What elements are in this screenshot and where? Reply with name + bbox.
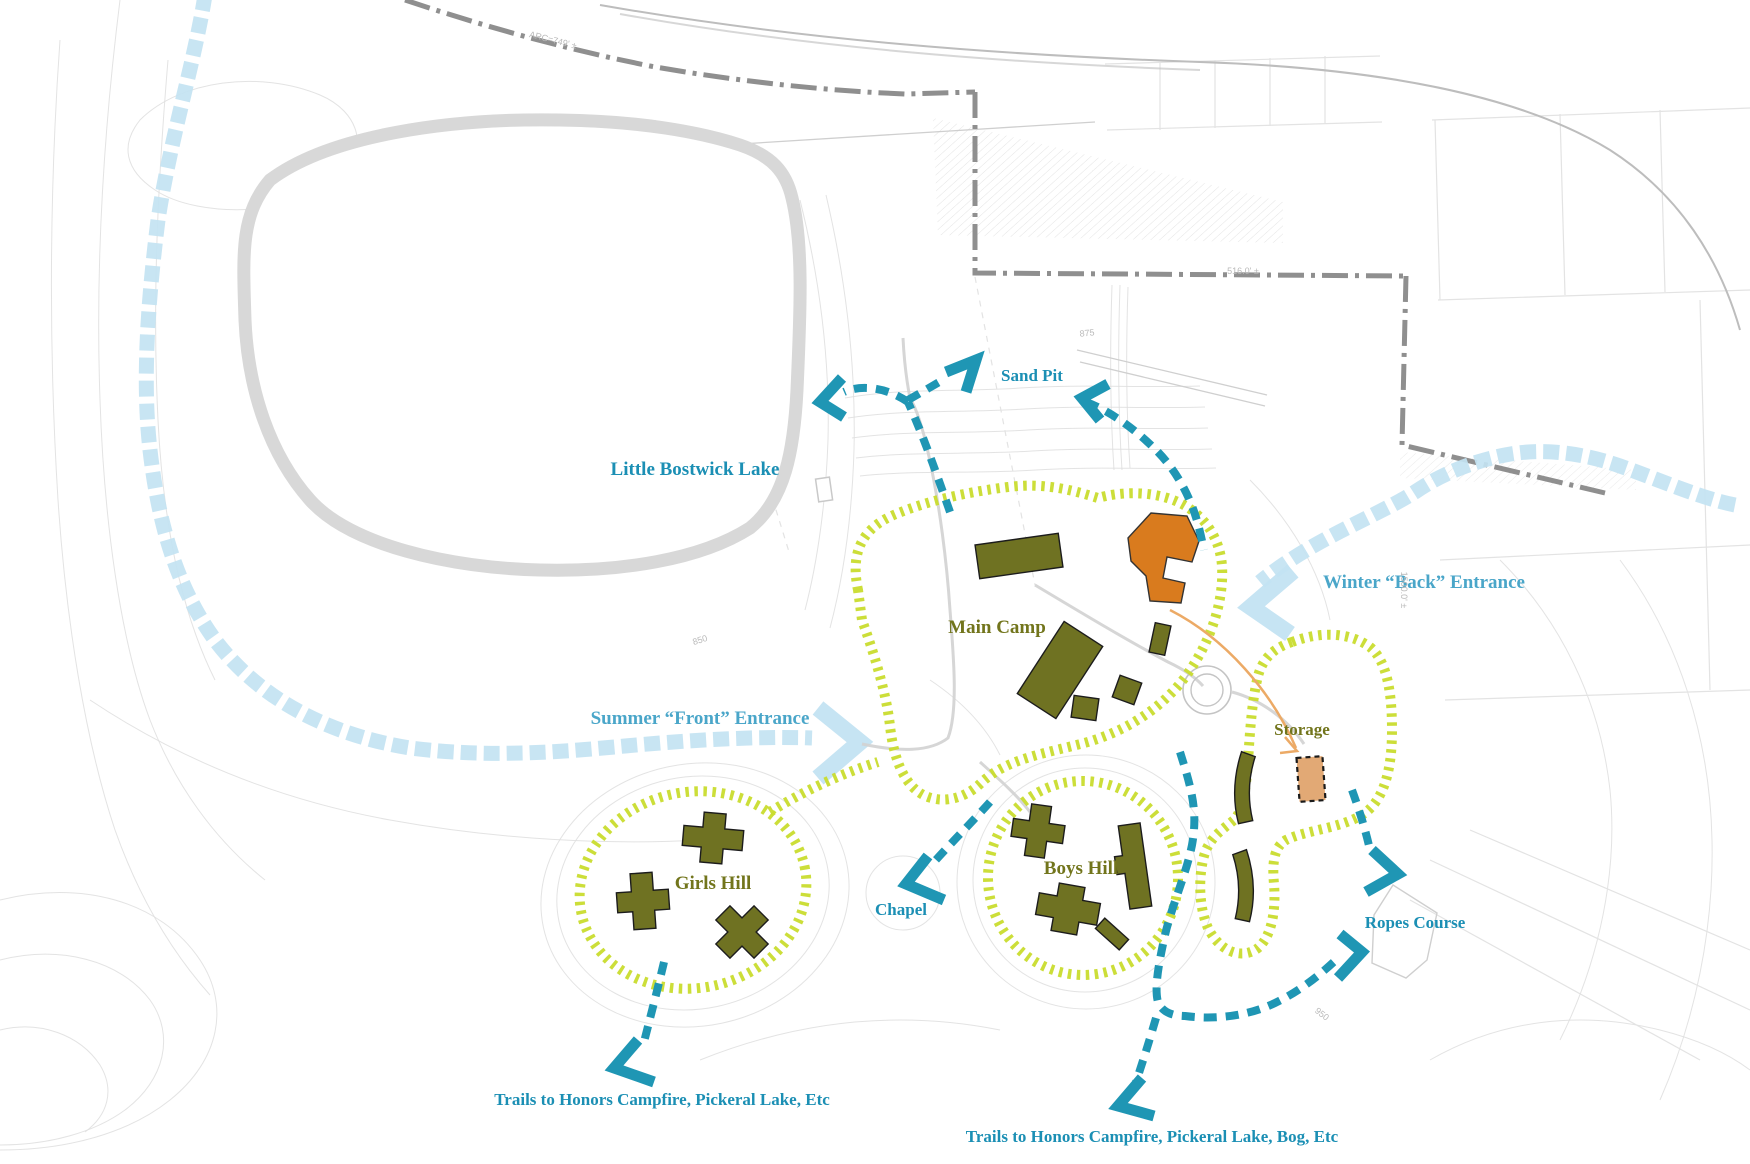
- boys-hill-cabin-3: [1033, 880, 1102, 938]
- label-winter-back-entrance: Winter “Back” Entrance: [1323, 572, 1525, 594]
- trail-arrow-ropes-icon: [1338, 934, 1362, 978]
- label-summer-front-entrance: Summer “Front” Entrance: [591, 708, 810, 730]
- slope-hatch-band: [933, 118, 1283, 243]
- main-camp-dining-hall: [1128, 513, 1199, 603]
- girls-hill-cabin-1: [681, 810, 745, 865]
- storage-shed: [1296, 756, 1325, 802]
- main-camp-cabin-3: [1149, 623, 1171, 656]
- label-boys-hill: Boys Hill: [1044, 858, 1118, 880]
- storage-building-1: [1232, 751, 1257, 824]
- label-main-camp: Main Camp: [948, 617, 1046, 639]
- trail-arrow-sand-pit-icon: [946, 360, 976, 392]
- boys-hill-cabin-4: [1095, 918, 1128, 950]
- main-camp-cabin-2: [1071, 695, 1099, 720]
- girls-hill-cabin-3: [704, 894, 780, 970]
- little-bostwick-lake-shape: [244, 120, 800, 570]
- camp-roads: [862, 338, 1304, 812]
- trail-arrow-chapel-icon: [906, 856, 944, 900]
- girls-hill-cabin-2: [615, 871, 671, 930]
- annotation-516: 516.0' ±: [1227, 266, 1259, 276]
- label-storage: Storage: [1274, 720, 1330, 740]
- trail-girls-hill-south: [643, 962, 664, 1046]
- annotation-elev-875: 875: [1079, 327, 1095, 339]
- trail-sand-pit-east-branch: [908, 378, 946, 400]
- boys-hill-cabin-1: [1009, 802, 1068, 861]
- winter-entrance-arrow-icon: [1251, 571, 1293, 634]
- site-plan-map: Little Bostwick Lake Sand Pit Summer “Fr…: [0, 0, 1750, 1164]
- trail-to-chapel: [934, 802, 990, 862]
- annotation-1500: 1500.0' ±: [1399, 572, 1409, 609]
- label-trails-southwest: Trails to Honors Campfire, Pickeral Lake…: [494, 1090, 830, 1110]
- lake-dock: [816, 477, 833, 502]
- trail-arrow-south-icon: [1118, 1078, 1154, 1116]
- trail-arrow-west-icon: [820, 378, 844, 417]
- main-camp-cabin-1: [1112, 675, 1141, 704]
- label-ropes-course: Ropes Course: [1365, 913, 1466, 933]
- label-trails-south: Trails to Honors Campfire, Pickeral Lake…: [966, 1127, 1338, 1147]
- activity-area-rings: [561, 486, 1392, 1010]
- main-camp-lodge: [975, 533, 1063, 578]
- roundabout-inner: [1191, 674, 1223, 706]
- label-chapel: Chapel: [875, 900, 927, 920]
- label-girls-hill: Girls Hill: [675, 873, 752, 895]
- trail-arrow-southwest-icon: [614, 1040, 654, 1082]
- trail-south-branch: [1136, 1018, 1156, 1082]
- summer-entrance-arrow-icon: [818, 708, 860, 778]
- storage-building-2: [1231, 849, 1256, 922]
- label-sand-pit: Sand Pit: [1001, 366, 1063, 386]
- label-little-bostwick-lake: Little Bostwick Lake: [611, 459, 780, 481]
